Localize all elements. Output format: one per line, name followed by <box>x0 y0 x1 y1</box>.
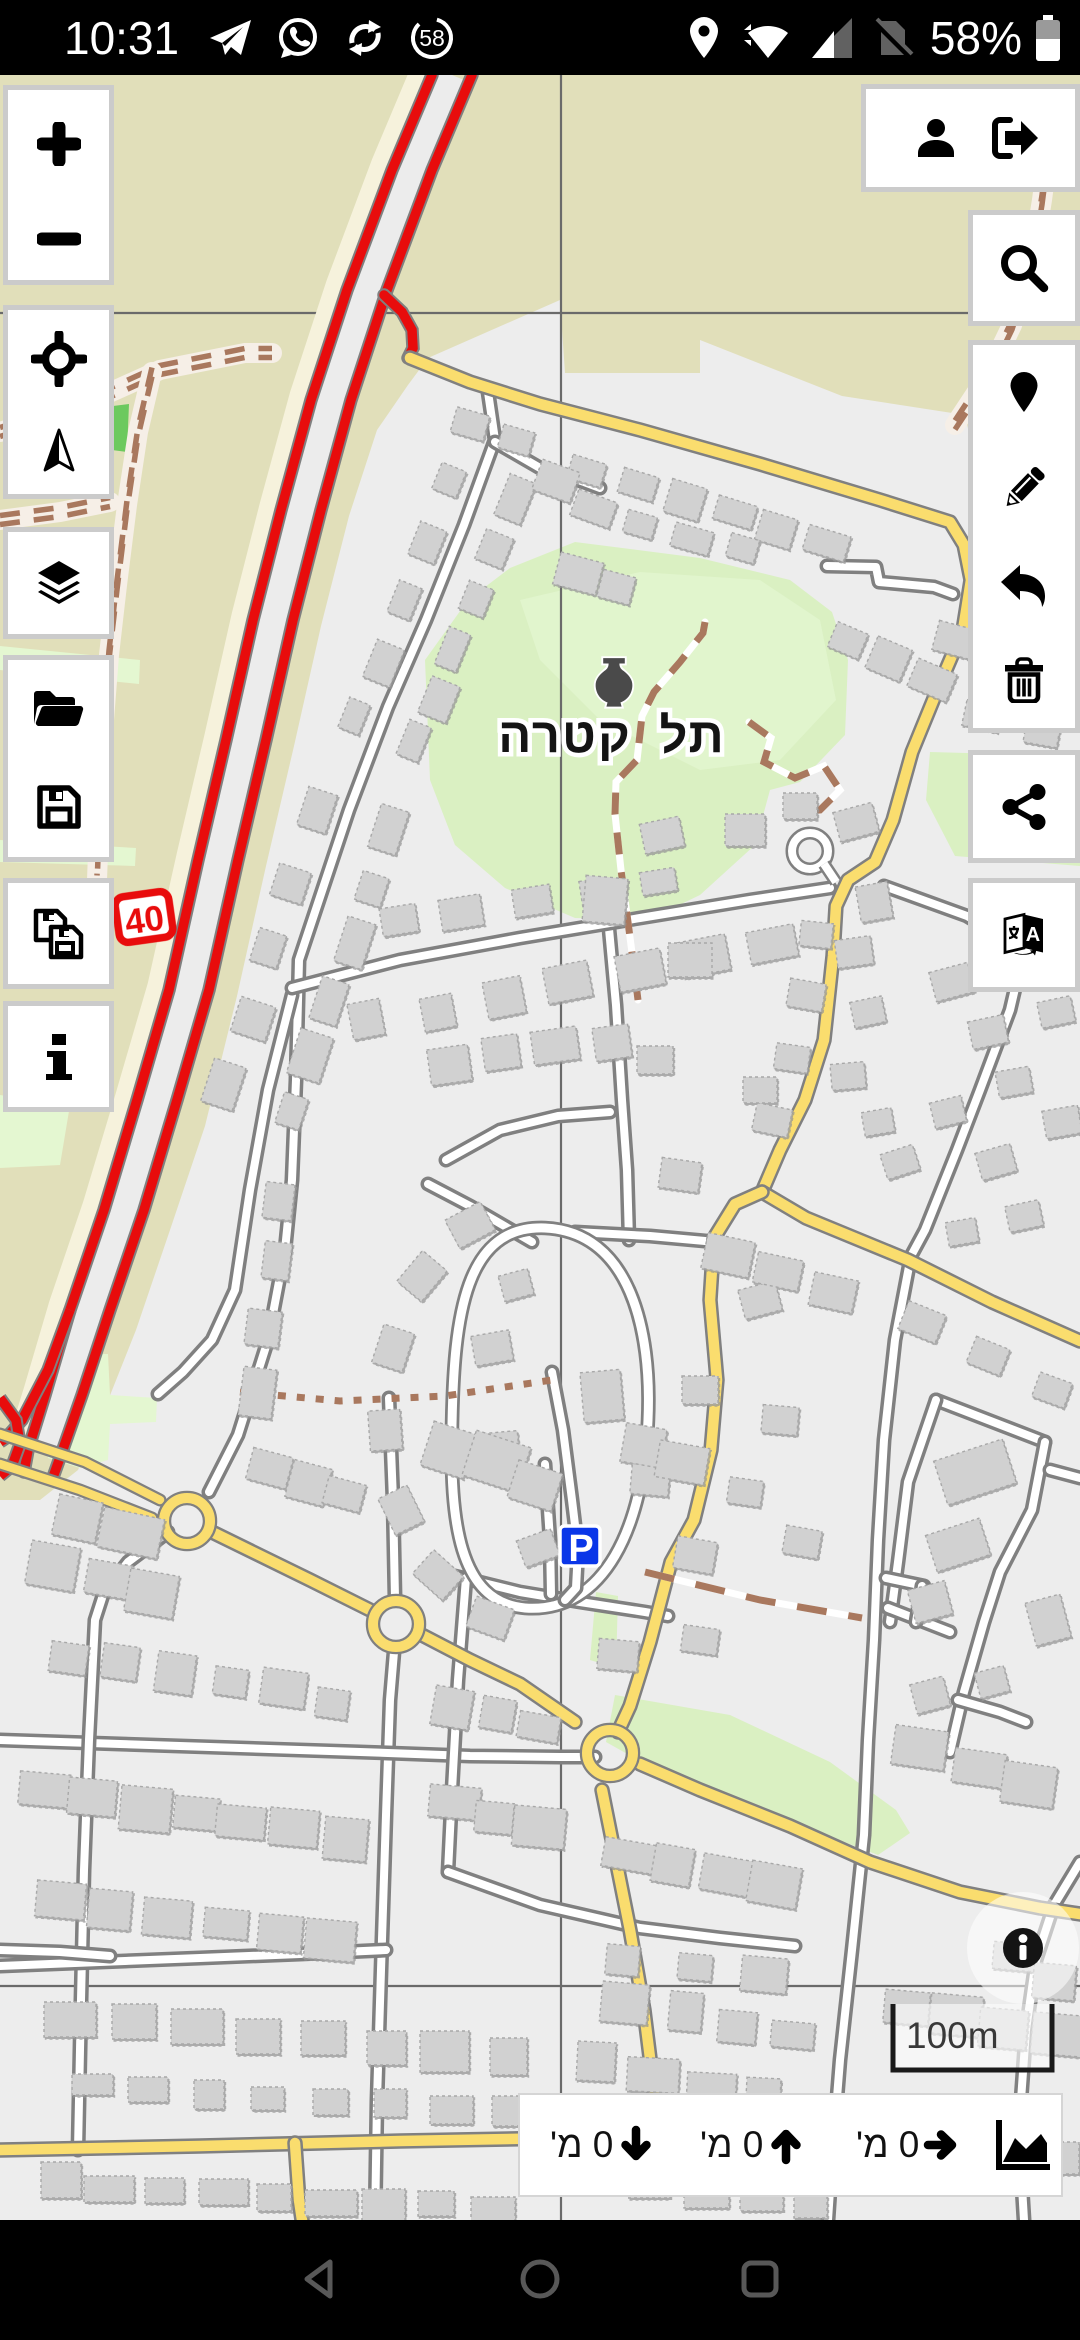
svg-text:תל קטרה: תל קטרה <box>498 709 725 763</box>
svg-text:58: 58 <box>419 25 445 51</box>
svg-text:A: A <box>1026 924 1040 946</box>
svg-text:40: 40 <box>122 898 166 942</box>
svg-text:100m: 100m <box>906 2015 999 2056</box>
svg-text:P: P <box>568 1528 593 1570</box>
